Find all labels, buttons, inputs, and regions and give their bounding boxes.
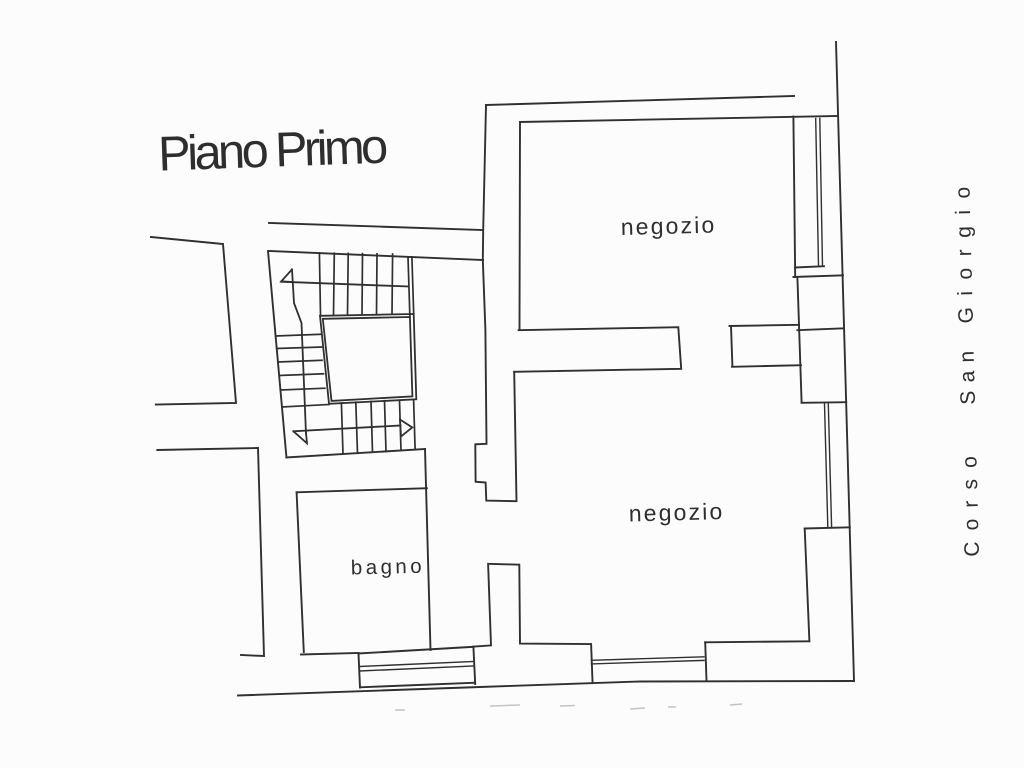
svg-text:negozio: negozio — [628, 498, 724, 526]
svg-text:Corso: Corso — [958, 445, 984, 557]
svg-text:Giorgio: Giorgio — [951, 175, 978, 324]
svg-text:San: San — [955, 342, 980, 405]
svg-text:bagno: bagno — [351, 555, 426, 580]
svg-text:Piano Primo: Piano Primo — [157, 120, 388, 182]
svg-text:negozio: negozio — [620, 212, 716, 240]
